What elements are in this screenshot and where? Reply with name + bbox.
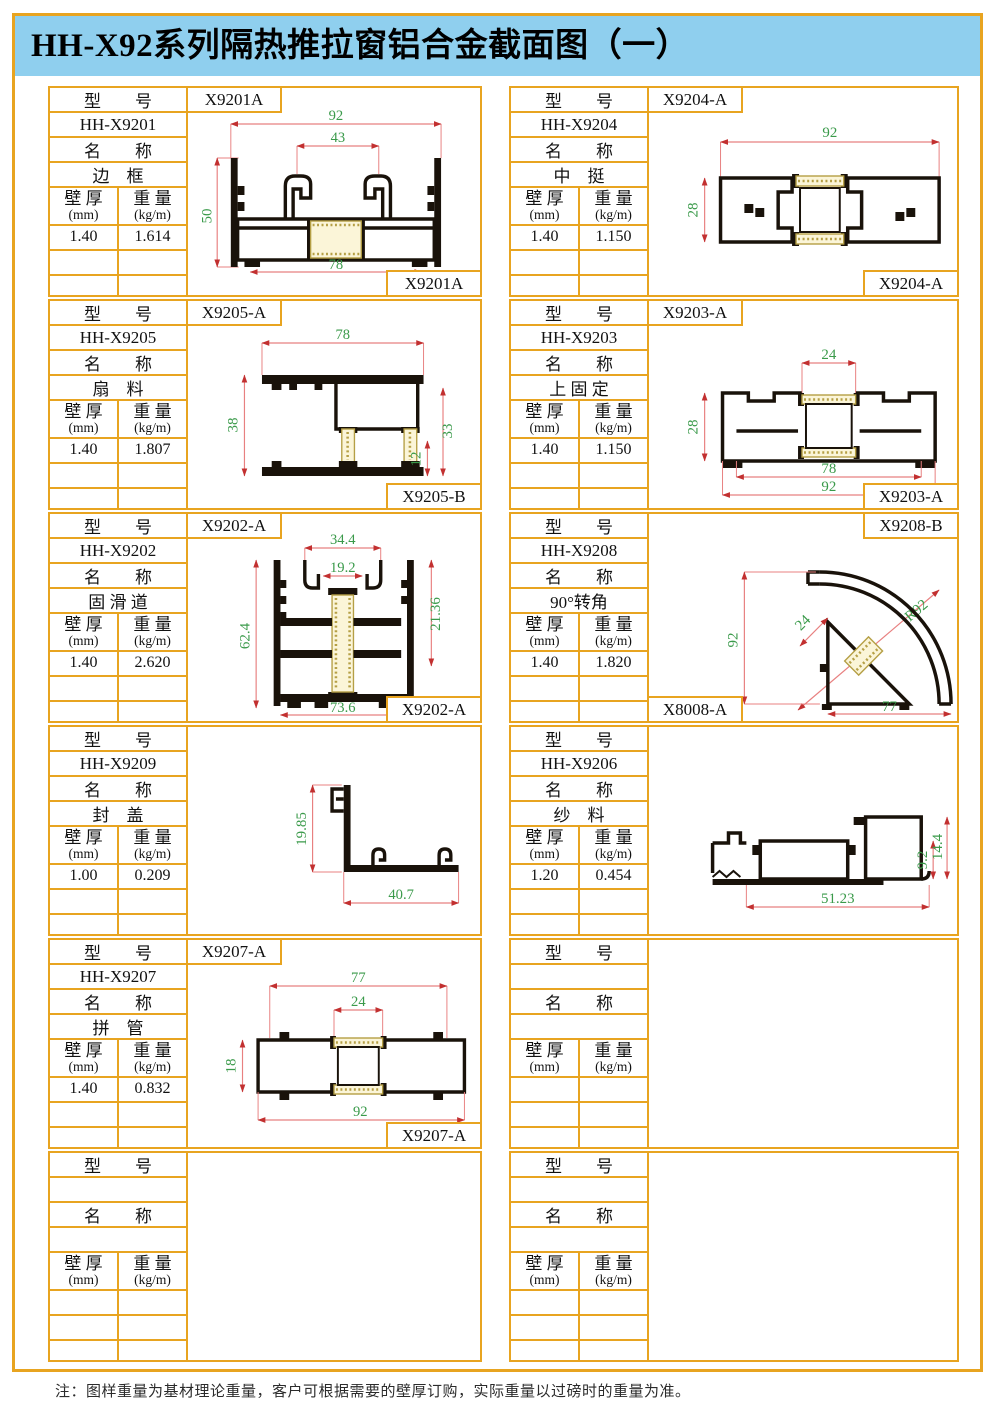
weight-value: 1.820 xyxy=(578,652,647,675)
dimension-label: 24 xyxy=(792,612,814,634)
model-header: 型 号 xyxy=(50,514,186,539)
weight-header: 重 量(kg/m) xyxy=(578,1040,647,1076)
model-code xyxy=(511,1178,647,1203)
model-tag: X9205-A xyxy=(186,299,282,326)
weight-value: 2.620 xyxy=(117,652,186,675)
thickness-value xyxy=(50,1291,117,1314)
model-tag: X9202-A xyxy=(186,512,282,539)
profile-name xyxy=(511,1228,647,1253)
spec-table: 型 号 HH-X9206 名 称 纱 料 壁 厚(mm) 重 量(kg/m) 1… xyxy=(511,727,649,934)
model-header: 型 号 xyxy=(511,88,647,113)
spec-table: 型 号 HH-X9208 名 称 90°转角 壁 厚(mm) 重 量(kg/m)… xyxy=(511,514,649,721)
dimension-label: 92 xyxy=(821,479,836,495)
profile-drawing: 34.4 19.2 62.4 xyxy=(188,514,480,721)
thickness-header: 壁 厚(mm) xyxy=(511,1253,578,1289)
thickness-header: 壁 厚(mm) xyxy=(50,1040,117,1076)
drawing-area: 9.2 14.4 51.23 xyxy=(649,727,957,934)
profile-cell-x9208: 型 号 HH-X9208 名 称 90°转角 壁 厚(mm) 重 量(kg/m)… xyxy=(509,512,959,723)
profile-name: 90°转角 xyxy=(511,589,647,614)
spec-table: 型 号 HH-X9202 名 称 固 滑 道 壁 厚(mm) 重 量(kg/m)… xyxy=(50,514,188,721)
name-header: 名 称 xyxy=(50,138,186,163)
thickness-value: 1.40 xyxy=(50,226,117,249)
profile-cell-x9204: 型 号 HH-X9204 名 称 中 挺 壁 厚(mm) 重 量(kg/m) 1… xyxy=(509,86,959,297)
drawing-area: 19.85 40.7 xyxy=(188,727,480,934)
model-tag: X9207-A xyxy=(386,1122,482,1149)
thickness-value: 1.20 xyxy=(511,865,578,888)
thickness-value xyxy=(511,1078,578,1101)
profile-name: 扇 料 xyxy=(50,376,186,401)
dimension-label: 9.2 xyxy=(915,851,931,870)
drawing-area xyxy=(649,940,957,1147)
model-tag: X9205-B xyxy=(386,483,482,510)
profile-drawing: 77 24 18 92 xyxy=(188,940,480,1147)
weight-value: 0.832 xyxy=(117,1078,186,1101)
thickness-header: 壁 厚(mm) xyxy=(511,1040,578,1076)
weight-header: 重 量(kg/m) xyxy=(578,188,647,224)
profile-cell-x9203: 型 号 HH-X9203 名 称 上 固 定 壁 厚(mm) 重 量(kg/m)… xyxy=(509,299,959,510)
weight-header: 重 量(kg/m) xyxy=(117,614,186,650)
model-header: 型 号 xyxy=(50,1153,186,1178)
profile-name: 固 滑 道 xyxy=(50,589,186,614)
model-header: 型 号 xyxy=(511,727,647,752)
dimension-label: 92 xyxy=(725,633,741,648)
dimension-label: 50 xyxy=(200,209,216,224)
profile-cell-empty-3: 型 号 名 称 壁 厚(mm) 重 量(kg/m) xyxy=(509,1151,959,1362)
thickness-value: 1.40 xyxy=(511,652,578,675)
dimension-label: 78 xyxy=(335,327,350,343)
model-header: 型 号 xyxy=(50,301,186,326)
model-tag: X9201A xyxy=(386,270,482,297)
thickness-value: 1.40 xyxy=(50,439,117,462)
dimension-label: 38 xyxy=(226,418,242,433)
profile-name xyxy=(511,1015,647,1040)
model-header: 型 号 xyxy=(50,727,186,752)
profile-name: 拼 管 xyxy=(50,1015,186,1040)
model-header: 型 号 xyxy=(50,88,186,113)
model-tag: X9207-A xyxy=(186,938,282,965)
weight-header: 重 量(kg/m) xyxy=(578,827,647,863)
model-header: 型 号 xyxy=(511,301,647,326)
profile-drawing: 92 43 50 xyxy=(188,88,480,295)
thickness-header: 壁 厚(mm) xyxy=(50,188,117,224)
model-code: HH-X9202 xyxy=(50,539,186,564)
thickness-value: 1.40 xyxy=(511,226,578,249)
name-header: 名 称 xyxy=(50,564,186,589)
dimension-label: 34.4 xyxy=(330,532,356,548)
weight-header: 重 量(kg/m) xyxy=(117,1253,186,1289)
model-header: 型 号 xyxy=(50,940,186,965)
weight-header: 重 量(kg/m) xyxy=(117,401,186,437)
drawing-area: X9207-A 77 24 18 xyxy=(188,940,480,1147)
model-header: 型 号 xyxy=(511,514,647,539)
profile-drawing: R92 92 24 xyxy=(649,514,957,721)
dimension-label: 43 xyxy=(331,130,346,146)
model-code: HH-X9207 xyxy=(50,965,186,990)
thickness-header: 壁 厚(mm) xyxy=(50,827,117,863)
drawing-area: X9201A 92 43 50 xyxy=(188,88,480,295)
dimension-label: 92 xyxy=(353,1104,368,1120)
model-code xyxy=(511,965,647,990)
profile-name xyxy=(50,1228,186,1253)
spec-table: 型 号 名 称 壁 厚(mm) 重 量(kg/m) xyxy=(511,940,649,1147)
thickness-header: 壁 厚(mm) xyxy=(511,827,578,863)
weight-value: 0.209 xyxy=(117,865,186,888)
thickness-value xyxy=(511,1291,578,1314)
drawing-area: X9205-A 78 38 33 xyxy=(188,301,480,508)
dimension-label: 12 xyxy=(409,452,425,467)
title-bar: HH-X92系列隔热推拉窗铝合金截面图（一） xyxy=(15,16,980,76)
name-header: 名 称 xyxy=(511,990,647,1015)
profile-drawing: 19.85 40.7 xyxy=(188,727,480,934)
dimension-label: 24 xyxy=(821,347,836,363)
weight-value: 1.807 xyxy=(117,439,186,462)
footnote: 注：图样重量为基材理论重量，客户可根据需要的壁厚订购，实际重量以过磅时的重量为准… xyxy=(55,1380,691,1401)
name-header: 名 称 xyxy=(50,1203,186,1228)
dimension-label: 77 xyxy=(882,699,897,715)
thickness-value: 1.00 xyxy=(50,865,117,888)
spec-table: 型 号 HH-X9207 名 称 拼 管 壁 厚(mm) 重 量(kg/m) 1… xyxy=(50,940,188,1147)
model-tag: X9204-A xyxy=(647,86,743,113)
weight-header: 重 量(kg/m) xyxy=(578,614,647,650)
name-header: 名 称 xyxy=(50,777,186,802)
dimension-label: 62.4 xyxy=(237,622,253,649)
drawing-area: X9202-A 34.4 19.2 xyxy=(188,514,480,721)
model-header: 型 号 xyxy=(511,940,647,965)
name-header: 名 称 xyxy=(511,138,647,163)
document-frame: HH-X92系列隔热推拉窗铝合金截面图（一） 型 号 HH-X9201 名 称 … xyxy=(12,13,983,1372)
model-code xyxy=(50,1178,186,1203)
name-header: 名 称 xyxy=(511,1203,647,1228)
thickness-value: 1.40 xyxy=(511,439,578,462)
weight-value: 1.150 xyxy=(578,226,647,249)
weight-header: 重 量(kg/m) xyxy=(117,188,186,224)
weight-header: 重 量(kg/m) xyxy=(117,1040,186,1076)
profile-cell-empty-1: 型 号 名 称 壁 厚(mm) 重 量(kg/m) xyxy=(509,938,959,1149)
profile-cell-x9201: 型 号 HH-X9201 名 称 边 框 壁 厚(mm) 重 量(kg/m) 1… xyxy=(48,86,482,297)
spec-table: 型 号 名 称 壁 厚(mm) 重 量(kg/m) xyxy=(511,1153,649,1360)
dimension-label: 18 xyxy=(224,1059,240,1074)
weight-value xyxy=(578,1291,647,1314)
profile-cell-empty-2: 型 号 名 称 壁 厚(mm) 重 量(kg/m) xyxy=(48,1151,482,1362)
model-tag: X9204-A xyxy=(863,270,959,297)
spec-table: 型 号 名 称 壁 厚(mm) 重 量(kg/m) xyxy=(50,1153,188,1360)
weight-header: 重 量(kg/m) xyxy=(117,827,186,863)
thickness-value: 1.40 xyxy=(50,1078,117,1101)
drawing-area xyxy=(188,1153,480,1360)
model-tag: X9203-A xyxy=(863,483,959,510)
dimension-label: 28 xyxy=(686,420,702,435)
dimension-label: 19.2 xyxy=(330,560,356,576)
name-header: 名 称 xyxy=(511,564,647,589)
profile-name: 纱 料 xyxy=(511,802,647,827)
model-code: HH-X9206 xyxy=(511,752,647,777)
model-code: HH-X9205 xyxy=(50,326,186,351)
page-title: HH-X92系列隔热推拉窗铝合金截面图（一） xyxy=(31,16,980,76)
thickness-value: 1.40 xyxy=(50,652,117,675)
profile-cell-x9202: 型 号 HH-X9202 名 称 固 滑 道 壁 厚(mm) 重 量(kg/m)… xyxy=(48,512,482,723)
model-tag: X9202-A xyxy=(386,696,482,723)
weight-value xyxy=(578,1078,647,1101)
name-header: 名 称 xyxy=(50,351,186,376)
dimension-label: 28 xyxy=(686,203,702,218)
profile-name: 上 固 定 xyxy=(511,376,647,401)
name-header: 名 称 xyxy=(511,777,647,802)
thickness-header: 壁 厚(mm) xyxy=(50,401,117,437)
weight-value xyxy=(117,1291,186,1314)
weight-value: 0.454 xyxy=(578,865,647,888)
spec-table: 型 号 HH-X9205 名 称 扇 料 壁 厚(mm) 重 量(kg/m) 1… xyxy=(50,301,188,508)
drawing-area: X9208-B R92 9 xyxy=(649,514,957,721)
dimension-label: 73.6 xyxy=(330,700,356,716)
model-code: HH-X9204 xyxy=(511,113,647,138)
dimension-label: 40.7 xyxy=(388,887,414,903)
model-header: 型 号 xyxy=(511,1153,647,1178)
profile-cell-x9209: 型 号 HH-X9209 名 称 封 盖 壁 厚(mm) 重 量(kg/m) 1… xyxy=(48,725,482,936)
profile-drawing: 24 28 78 92 xyxy=(649,301,957,508)
thickness-header: 壁 厚(mm) xyxy=(50,614,117,650)
spec-table: 型 号 HH-X9209 名 称 封 盖 壁 厚(mm) 重 量(kg/m) 1… xyxy=(50,727,188,934)
name-header: 名 称 xyxy=(511,351,647,376)
model-tag: X9201A xyxy=(186,86,282,113)
name-header: 名 称 xyxy=(50,990,186,1015)
model-tag: X9203-A xyxy=(647,299,743,326)
dimension-label: 78 xyxy=(821,461,836,477)
drawing-area: X9204-A 92 28 X9204-A xyxy=(649,88,957,295)
dimension-label: 21.36 xyxy=(428,597,444,631)
profile-cell-x9206: 型 号 HH-X9206 名 称 纱 料 壁 厚(mm) 重 量(kg/m) 1… xyxy=(509,725,959,936)
model-code: HH-X9208 xyxy=(511,539,647,564)
spec-table: 型 号 HH-X9201 名 称 边 框 壁 厚(mm) 重 量(kg/m) 1… xyxy=(50,88,188,295)
profile-name: 封 盖 xyxy=(50,802,186,827)
profile-drawing: 9.2 14.4 51.23 xyxy=(649,727,957,934)
thickness-header: 壁 厚(mm) xyxy=(50,1253,117,1289)
dimension-label: 92 xyxy=(822,125,837,141)
profile-drawing: 92 28 xyxy=(649,88,957,295)
profile-grid: 型 号 HH-X9201 名 称 边 框 壁 厚(mm) 重 量(kg/m) 1… xyxy=(48,86,959,1362)
thickness-header: 壁 厚(mm) xyxy=(511,401,578,437)
model-code: HH-X9203 xyxy=(511,326,647,351)
dimension-label: 78 xyxy=(329,257,344,273)
weight-value: 1.614 xyxy=(117,226,186,249)
thickness-header: 壁 厚(mm) xyxy=(511,188,578,224)
dimension-label: 14.4 xyxy=(930,833,946,860)
model-tag: X8008-A xyxy=(647,696,743,723)
weight-header: 重 量(kg/m) xyxy=(578,401,647,437)
model-code: HH-X9209 xyxy=(50,752,186,777)
thickness-header: 壁 厚(mm) xyxy=(511,614,578,650)
spec-table: 型 号 HH-X9204 名 称 中 挺 壁 厚(mm) 重 量(kg/m) 1… xyxy=(511,88,649,295)
profile-name: 中 挺 xyxy=(511,163,647,188)
spec-table: 型 号 HH-X9203 名 称 上 固 定 壁 厚(mm) 重 量(kg/m)… xyxy=(511,301,649,508)
dimension-label: 24 xyxy=(351,994,366,1010)
dimension-label: 92 xyxy=(329,108,344,124)
drawing-area: X9203-A 24 28 78 xyxy=(649,301,957,508)
profile-cell-x9207: 型 号 HH-X9207 名 称 拼 管 壁 厚(mm) 重 量(kg/m) 1… xyxy=(48,938,482,1149)
drawing-area xyxy=(649,1153,957,1360)
profile-cell-x9205: 型 号 HH-X9205 名 称 扇 料 壁 厚(mm) 重 量(kg/m) 1… xyxy=(48,299,482,510)
dimension-label: 51.23 xyxy=(821,891,855,907)
weight-header: 重 量(kg/m) xyxy=(578,1253,647,1289)
dimension-label: 33 xyxy=(440,424,456,439)
model-tag: X9208-B xyxy=(863,512,959,539)
profile-drawing: 78 38 33 12 xyxy=(188,301,480,508)
weight-value: 1.150 xyxy=(578,439,647,462)
model-code: HH-X9201 xyxy=(50,113,186,138)
profile-name: 边 框 xyxy=(50,163,186,188)
dimension-label: 77 xyxy=(351,970,366,986)
dimension-label: 19.85 xyxy=(294,812,310,846)
